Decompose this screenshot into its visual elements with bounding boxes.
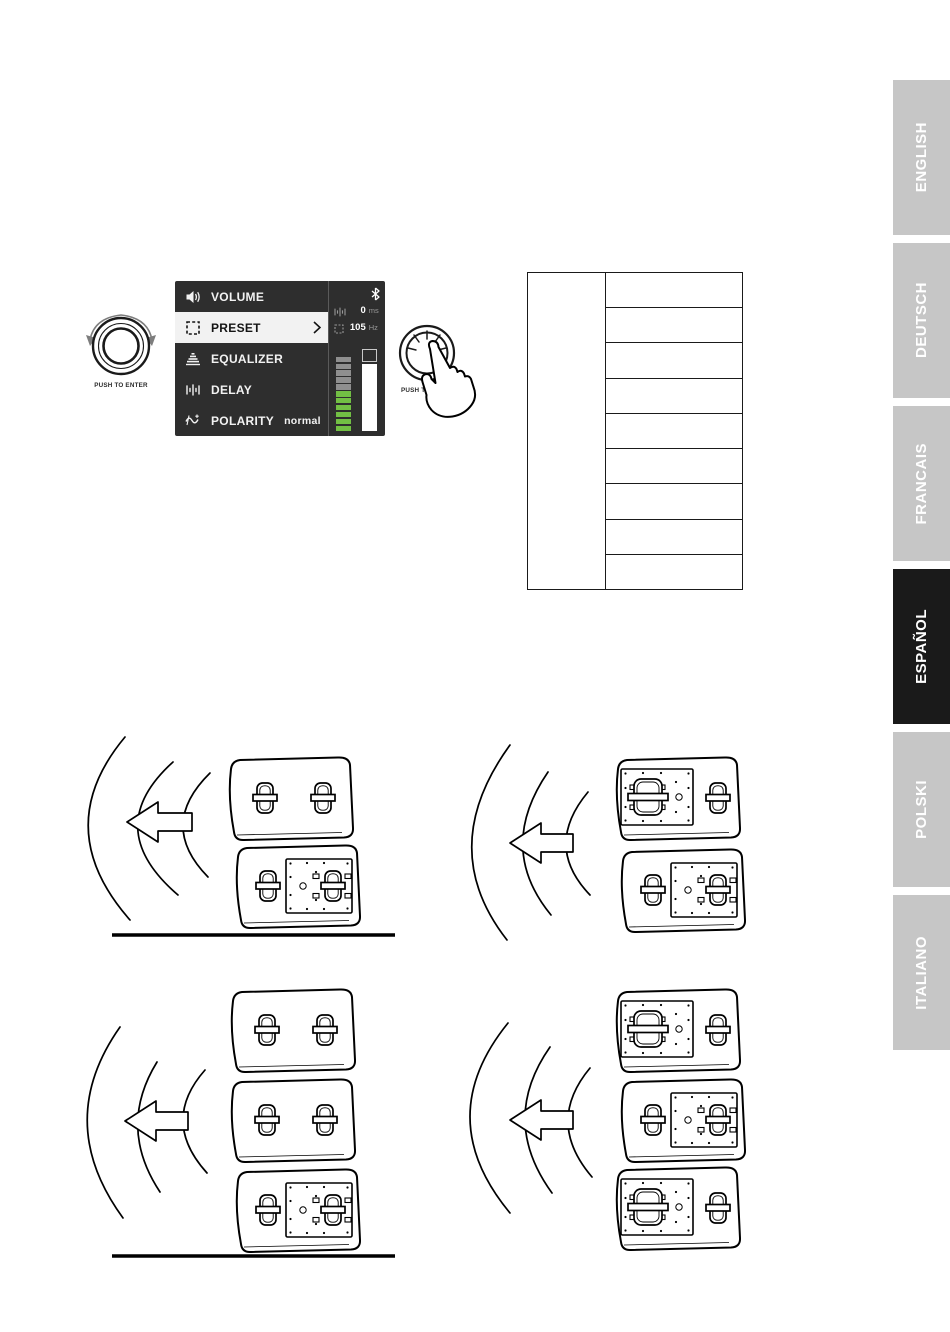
direction-arrow-left: [127, 802, 192, 842]
preset-frequency-unit: Hz: [369, 323, 383, 332]
diagram-stack-3-cardioid: [460, 985, 790, 1270]
level-meter-and-fader: [336, 349, 377, 431]
tab-deutsch: DEUTSCH: [893, 243, 950, 398]
menu-item-equalizer: EQUALIZER: [175, 343, 328, 374]
menu-item-label: EQUALIZER: [211, 352, 283, 366]
menu-item-volume: VOLUME: [175, 281, 328, 312]
tab-label: ESPAÑOL: [913, 609, 930, 684]
preset-icon: [184, 319, 201, 336]
table-row: [606, 555, 742, 589]
lcd-menu: VOLUME PRESET EQUALIZER: [175, 281, 328, 436]
menu-item-delay: DELAY: [175, 374, 328, 405]
table-row: [606, 273, 742, 308]
fader-bar: [362, 364, 377, 431]
tab-label: ENGLISH: [913, 122, 930, 192]
menu-item-label: VOLUME: [211, 290, 264, 304]
preset-table: [527, 272, 743, 590]
tab-label: FRANCAIS: [913, 443, 930, 525]
tab-polski: POLSKI: [893, 732, 950, 887]
fader-handle: [362, 349, 377, 362]
tab-francais: FRANCAIS: [893, 406, 950, 561]
delay-small-icon: [334, 307, 347, 317]
delay-unit: ms: [369, 306, 383, 315]
tab-label: POLSKI: [913, 780, 930, 839]
status-preset-row: 105 Hz: [334, 322, 383, 336]
table-row: [606, 343, 742, 378]
delay-value: 0: [360, 305, 365, 316]
direction-arrow-left: [510, 823, 573, 863]
polarity-icon: [184, 412, 201, 429]
knob-outer-ring: [93, 318, 149, 374]
push-button-illustration: PUSH TO ENTER: [393, 318, 493, 424]
chevron-right-icon: [313, 321, 321, 334]
menu-item-label: DELAY: [211, 383, 252, 397]
diagram-stack-2-cardioid: [460, 728, 790, 963]
delay-icon: [184, 381, 201, 398]
rotary-encoder-illustration: PUSH TO ENTER: [76, 306, 171, 398]
tab-label: ITALIANO: [913, 936, 930, 1010]
manual-page: PUSH TO ENTER VOLUME PRESET: [0, 0, 950, 1332]
diagram-stack-2-standard: [80, 728, 410, 963]
direction-arrow-left: [510, 1100, 573, 1140]
menu-item-label: POLARITY: [211, 414, 274, 428]
preset-small-icon: [334, 324, 347, 334]
direction-arrow-left: [125, 1101, 188, 1141]
tab-label: DEUTSCH: [913, 282, 930, 358]
menu-item-preset-selected: PRESET: [175, 312, 328, 343]
table-row: [606, 379, 742, 414]
level-meter: [336, 357, 351, 431]
preset-frequency-value: 105: [350, 322, 366, 333]
equalizer-icon: [184, 350, 201, 367]
table-row: [606, 484, 742, 519]
tab-espanol: ESPAÑOL: [893, 569, 950, 724]
menu-item-polarity: POLARITY normal: [175, 405, 328, 436]
status-delay-row: 0 ms: [334, 305, 383, 319]
knob-label: PUSH TO ENTER: [94, 382, 148, 389]
volume-fader: [362, 349, 377, 431]
lcd-display: VOLUME PRESET EQUALIZER: [175, 281, 385, 436]
volume-icon: [184, 288, 201, 305]
bluetooth-icon: [371, 287, 380, 306]
table-row: [606, 520, 742, 555]
table-row: [606, 414, 742, 449]
menu-item-label: PRESET: [211, 321, 261, 335]
tab-english: ENGLISH: [893, 80, 950, 235]
lcd-status-panel: 0 ms 105 Hz: [328, 281, 389, 436]
table-row: [606, 308, 742, 343]
polarity-value: normal: [284, 415, 321, 427]
preset-table-left-column: [528, 273, 606, 589]
diagram-stack-3-standard: [80, 985, 410, 1270]
preset-table-right-column: [606, 273, 742, 589]
tab-italiano: ITALIANO: [893, 895, 950, 1050]
table-row: [606, 449, 742, 484]
